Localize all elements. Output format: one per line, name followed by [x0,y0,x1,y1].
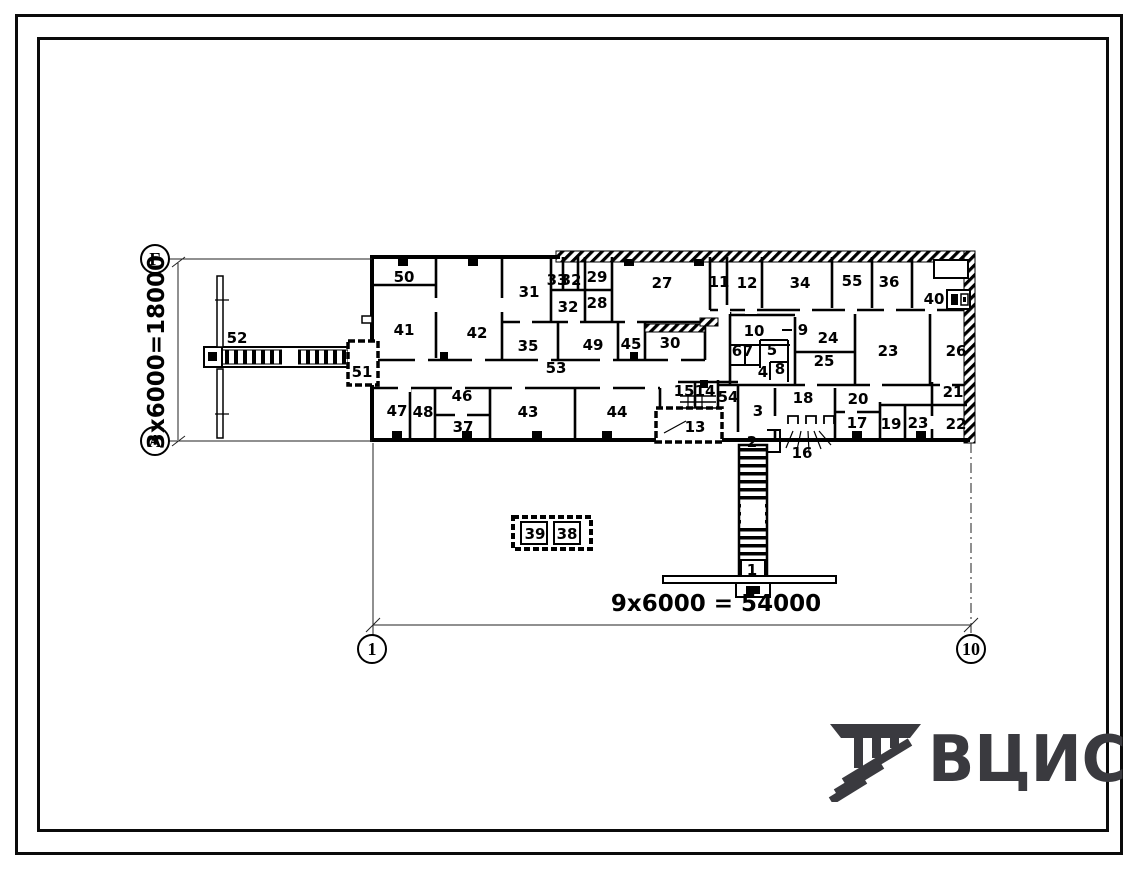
room-label-40: 40 [924,290,945,308]
room-label-22: 22 [946,415,967,433]
room-label-12: 12 [737,274,758,292]
room-label-45: 45 [621,335,642,353]
gangway-52 [204,347,356,367]
room-label-16: 16 [792,444,813,462]
room-label-29: 29 [587,268,608,286]
radiator-marks [788,416,834,424]
room-label-34: 34 [790,274,811,292]
room-label-25: 25 [814,352,835,370]
room-label-20: 20 [848,390,869,408]
vcis-logo-text: ВЦИС [928,728,1126,792]
room-label-23: 23 [908,414,929,432]
room-label-31: 31 [519,283,540,301]
room-label-19: 19 [881,415,902,433]
room-label-1: 1 [747,561,757,579]
room-label-24: 24 [818,329,839,347]
room-label-4: 4 [758,363,768,381]
room-label-49: 49 [583,336,604,354]
room-label-50: 50 [394,268,415,286]
vertical-dimension-text: 3x6000=18000 [144,255,170,449]
room-label-30: 30 [660,334,681,352]
room-label-11: 11 [709,273,730,291]
room-label-15: 15 [674,382,695,400]
room-label-13: 13 [685,418,706,436]
room-label-27: 27 [652,274,673,292]
room-label-32: 32 [561,271,582,289]
room-label-38: 38 [557,525,578,543]
room-label-37: 37 [453,418,474,436]
room-label-10: 10 [744,322,765,340]
room-label-14: 14 [695,382,716,400]
room-label-35: 35 [518,337,539,355]
room-label-26: 26 [946,342,967,360]
horizontal-dimension-text: 9x6000 = 54000 [611,591,821,617]
room-label-39: 39 [525,525,546,543]
room-label-44: 44 [607,403,628,421]
axis-label-col-right: 10 [962,639,980,659]
room-label-54: 54 [718,388,739,406]
room-label-2: 2 [747,433,757,451]
room-label-6: 6 [732,342,742,360]
room-label-47: 47 [387,402,408,420]
room-label-21: 21 [943,383,964,401]
room-label-32: 32 [558,298,579,316]
room-label-8: 8 [775,360,785,378]
room-label-23: 23 [878,342,899,360]
room-label-46: 46 [452,387,473,405]
room-label-55: 55 [842,272,863,290]
room-label-18: 18 [793,389,814,407]
axis-label-col-left: 1 [368,639,377,659]
room-label-43: 43 [518,403,539,421]
vcis-logo: ВЦИС [828,718,1137,802]
room-label-41: 41 [394,321,415,339]
room-label-48: 48 [413,403,434,421]
room-label-42: 42 [467,324,488,342]
room-label-36: 36 [879,273,900,291]
room-label-53: 53 [546,359,567,377]
hoist-icon-40 [947,290,970,309]
vcis-logo-icon [828,718,924,802]
room-label-17: 17 [847,414,868,432]
room-label-28: 28 [587,294,608,312]
room-label-51: 51 [352,363,373,381]
room-label-9: 9 [798,321,808,339]
room-label-3: 3 [753,402,763,420]
room-label-52: 52 [227,329,248,347]
room-label-7: 7 [743,342,753,360]
room-label-5: 5 [767,341,777,359]
